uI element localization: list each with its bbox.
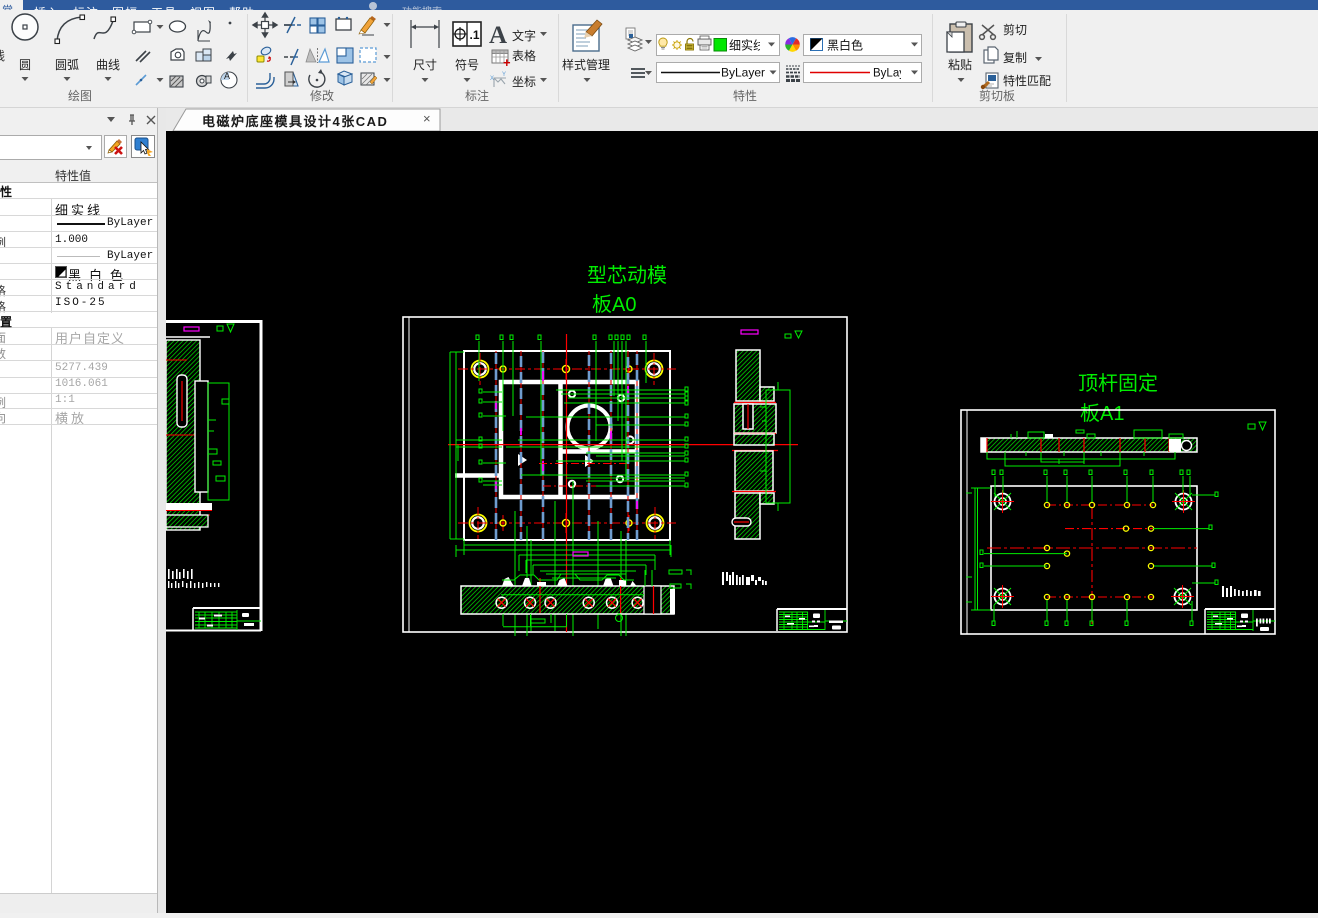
svg-text:细实线: 细实线 xyxy=(729,38,765,53)
svg-text:顶杆固定: 顶杆固定 xyxy=(1078,372,1158,395)
svg-text:板A1: 板A1 xyxy=(1080,402,1124,425)
svg-text:圆: 圆 xyxy=(19,58,31,72)
svg-text:表格: 表格 xyxy=(512,48,536,63)
svg-text:.1: .1 xyxy=(470,28,480,42)
svg-text:文字: 文字 xyxy=(512,28,536,43)
svg-text:型芯动模: 型芯动模 xyxy=(587,264,667,287)
svg-text:黑白色: 黑白色 xyxy=(827,38,863,53)
svg-text:线: 线 xyxy=(0,49,5,63)
svg-text:曲线: 曲线 xyxy=(96,58,120,72)
svg-text:特性匹配: 特性匹配 xyxy=(1003,73,1051,88)
svg-text:X: X xyxy=(490,76,494,82)
svg-text:尺寸: 尺寸 xyxy=(413,58,437,72)
svg-text:A: A xyxy=(489,22,507,49)
svg-text:板A0: 板A0 xyxy=(592,293,636,316)
svg-text:ByLayer: ByLayer xyxy=(721,66,765,80)
svg-text:剪切: 剪切 xyxy=(1003,22,1027,37)
svg-text:粘贴: 粘贴 xyxy=(948,57,972,72)
svg-text:+: + xyxy=(503,55,511,70)
svg-text:符号: 符号 xyxy=(455,57,479,72)
svg-text:Y: Y xyxy=(502,72,506,78)
svg-text:A: A xyxy=(224,71,230,81)
svg-text:圆弧: 圆弧 xyxy=(55,58,79,72)
svg-text:ByLay: ByLay xyxy=(873,68,905,80)
svg-text:样式管理: 样式管理 xyxy=(562,57,610,72)
svg-text:复制: 复制 xyxy=(1003,51,1027,65)
